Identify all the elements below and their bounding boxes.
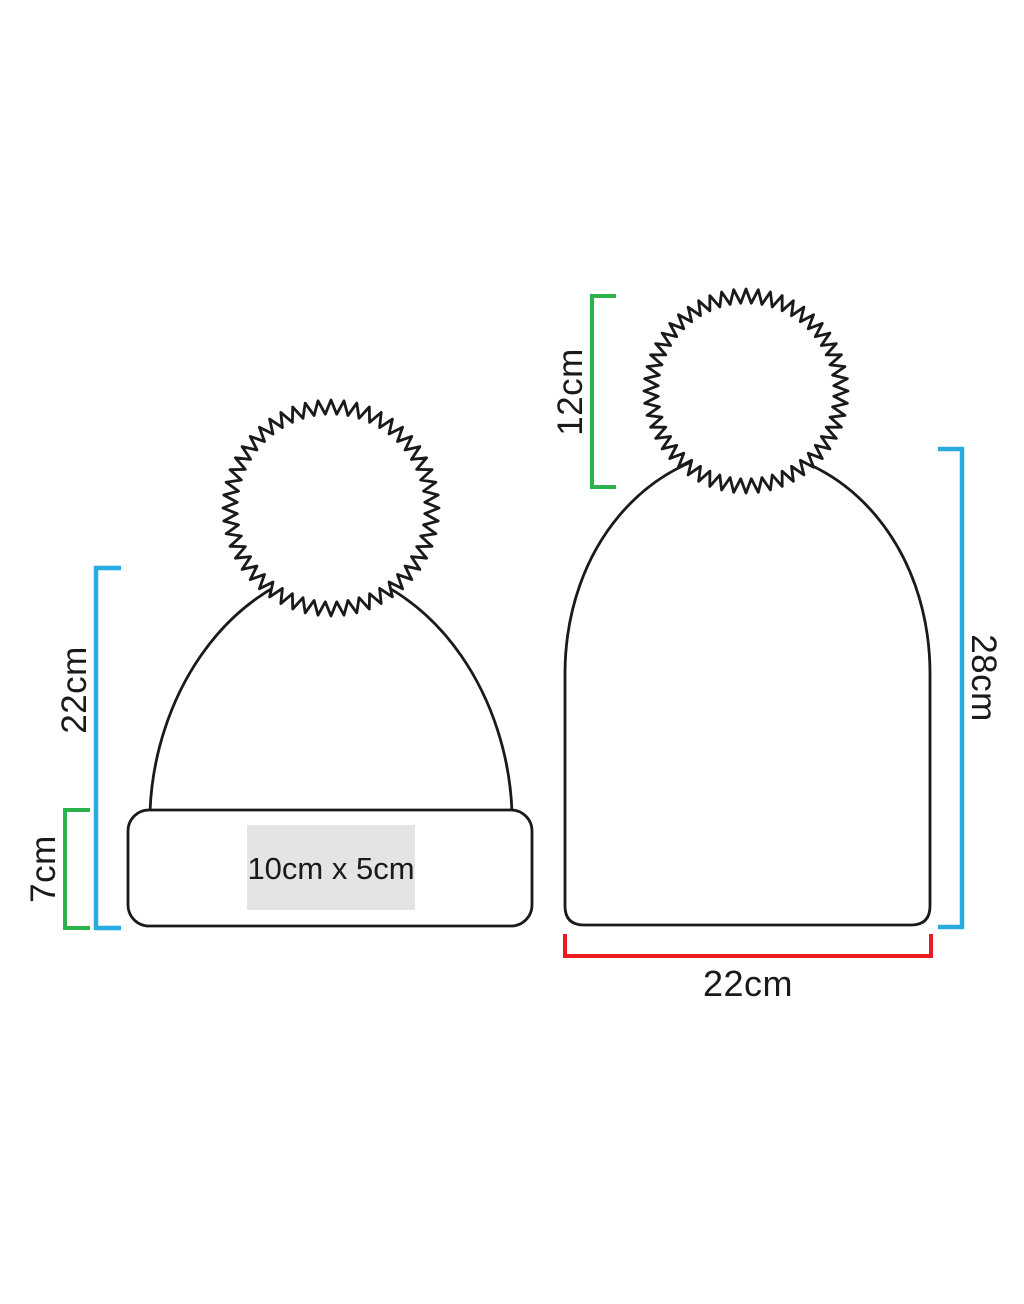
beanie-size-diagram: 10cm x 5cm 22cm 7cm 12cm 28cm 22cm [0, 0, 1024, 1304]
right-beanie [565, 289, 930, 925]
diagram-svg: 10cm x 5cm 22cm 7cm 12cm 28cm 22cm [0, 0, 1024, 1304]
print-area-label: 10cm x 5cm [247, 851, 414, 886]
left-height-label: 22cm [55, 646, 94, 734]
left-pompom [223, 400, 439, 616]
left-beanie: 10cm x 5cm [128, 400, 532, 926]
cuff-height-label: 7cm [24, 835, 63, 903]
left-height-bracket [96, 568, 121, 928]
width-bracket [565, 934, 931, 956]
left-beanie-dimensions: 22cm 7cm [24, 568, 121, 928]
width-label: 22cm [703, 963, 793, 1004]
pom-height-bracket [592, 296, 616, 487]
pom-height-label: 12cm [551, 348, 590, 436]
right-height-label: 28cm [964, 634, 1003, 722]
right-pompom [644, 289, 848, 493]
right-height-bracket [938, 449, 962, 927]
right-beanie-body [565, 449, 930, 925]
cuff-height-bracket [65, 810, 90, 928]
